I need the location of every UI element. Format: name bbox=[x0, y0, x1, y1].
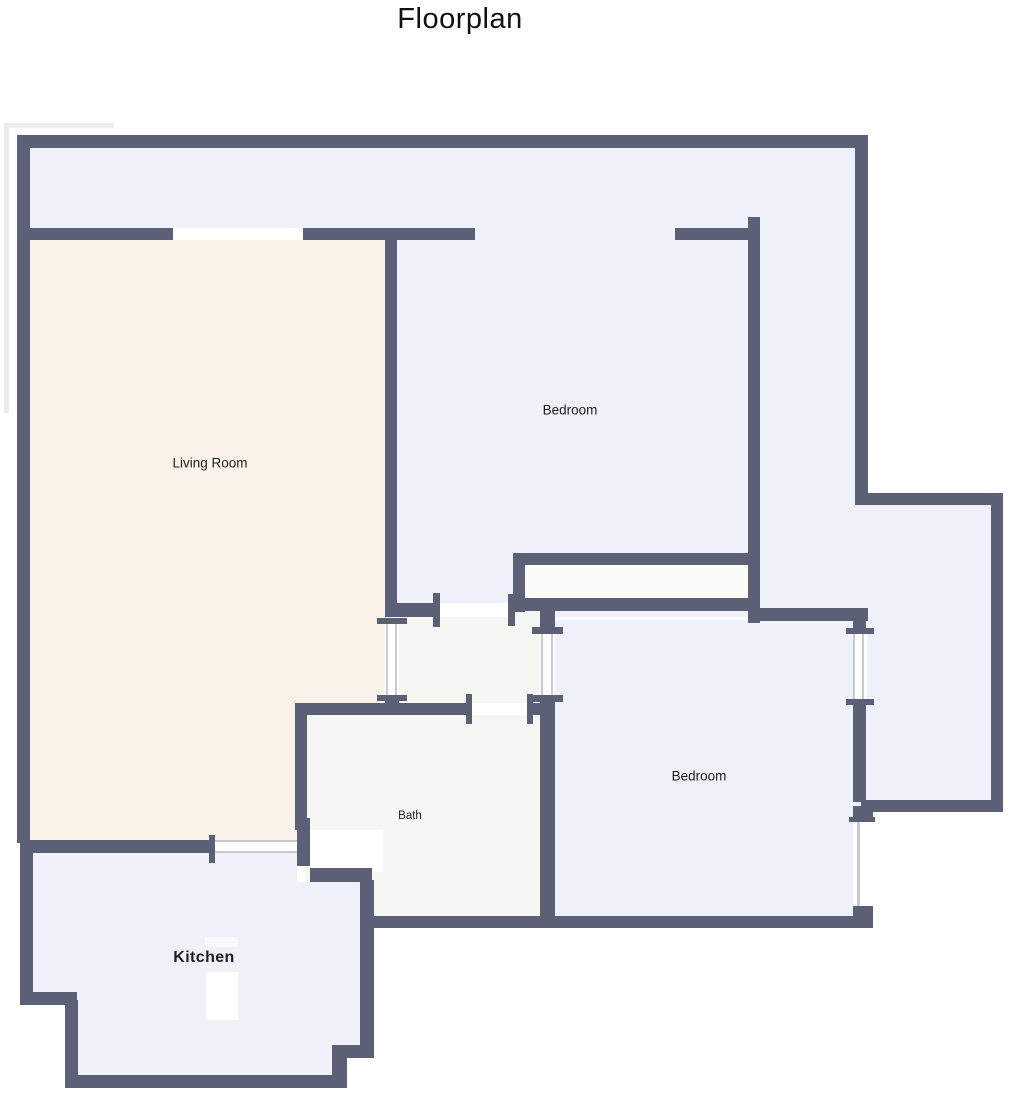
kitchen-counter bbox=[205, 937, 238, 947]
hallway-fill bbox=[30, 148, 855, 240]
corridor-fill bbox=[760, 240, 860, 612]
room-label-kitchen: Kitchen bbox=[173, 949, 234, 967]
room-label-living-room: Living Room bbox=[172, 456, 247, 471]
room-label-bath: Bath bbox=[398, 810, 422, 822]
notch-white bbox=[310, 830, 383, 872]
floorplan-drawing bbox=[0, 0, 1010, 1096]
living-room-doorway bbox=[173, 228, 303, 240]
room-label-bedroom-bottom: Bedroom bbox=[672, 769, 727, 784]
kitchen-appliance bbox=[206, 972, 238, 1020]
closet-fill bbox=[525, 565, 748, 598]
room-label-bedroom-top: Bedroom bbox=[543, 403, 598, 418]
extension-fill bbox=[853, 505, 991, 805]
floorplan-page: Floorplan bbox=[0, 0, 1010, 1096]
